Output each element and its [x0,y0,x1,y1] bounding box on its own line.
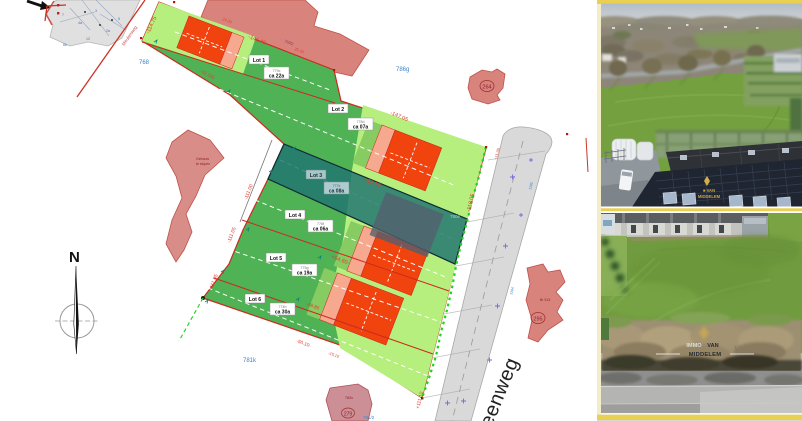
svg-text:780e: 780e [450,214,461,219]
svg-text:778d: 778d [357,120,365,124]
svg-text:IMMO: IMMO [686,343,702,349]
svg-text:Lot 4: Lot 4 [289,213,302,219]
svg-text:ca 06a: ca 06a [313,227,329,233]
svg-text:Lot 6: Lot 6 [249,297,262,303]
svg-text:Nr 913: Nr 913 [540,298,551,302]
svg-text:ca 08a: ca 08a [329,189,345,195]
svg-text:295: 295 [533,317,542,323]
svg-text:264: 264 [482,85,491,91]
svg-text:776f: 776f [317,222,324,226]
svg-text:5: 5 [118,17,120,21]
svg-text:777e: 777e [333,184,341,188]
svg-text:279: 279 [344,412,353,418]
svg-text:774h: 774h [279,305,287,309]
svg-text:786g: 786g [396,67,409,73]
svg-text:N: N [69,249,80,266]
svg-text:2a: 2a [106,29,110,33]
svg-text:Lot 5: Lot 5 [270,256,283,262]
svg-text:Gebouw: Gebouw [196,157,210,161]
svg-text:775g: 775g [301,266,309,270]
svg-text:783v: 783v [345,396,353,400]
svg-text:■ VAN: ■ VAN [703,188,715,193]
svg-text:ca 19a: ca 19a [297,271,313,277]
svg-text:te slopen: te slopen [196,162,210,166]
svg-text:MIDDELEM: MIDDELEM [689,352,722,358]
svg-text:Lot 1: Lot 1 [253,58,266,64]
svg-text:Lot 3: Lot 3 [310,173,323,179]
svg-text:ca 22a: ca 22a [269,74,285,80]
svg-text:4a: 4a [78,21,82,25]
svg-text:779c: 779c [273,69,281,73]
svg-text:781/2: 781/2 [363,415,375,420]
svg-text:ca 30a: ca 30a [275,310,291,316]
svg-text:Lot 2: Lot 2 [332,107,345,113]
svg-text:ca 07a: ca 07a [353,125,369,131]
svg-text:8b: 8b [63,43,67,47]
svg-text:7: 7 [62,13,64,17]
svg-text:MIDDELEM: MIDDELEM [698,194,721,199]
svg-text:3: 3 [95,9,97,13]
svg-text:768: 768 [139,60,150,66]
svg-text:VAN: VAN [707,343,718,349]
svg-text:781k: 781k [243,358,257,364]
svg-text:12: 12 [86,37,90,41]
